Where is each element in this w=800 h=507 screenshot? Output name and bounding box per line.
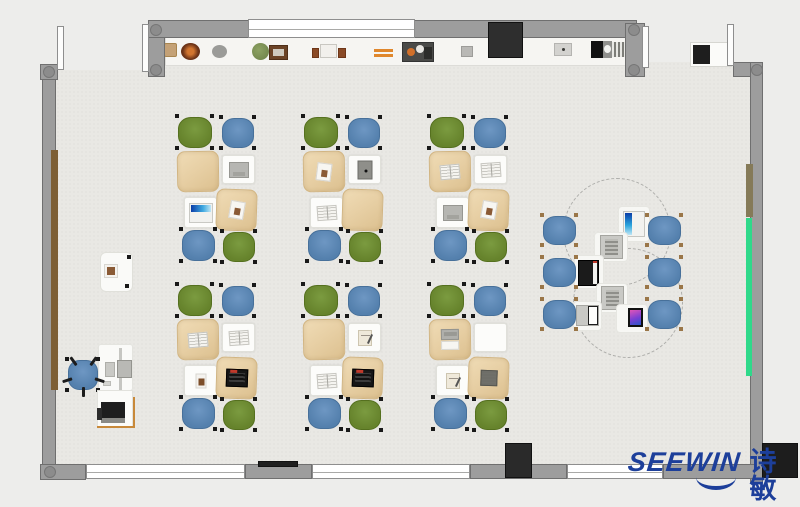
paper-sheet [480, 200, 498, 220]
chair-foot [504, 314, 508, 318]
chair-foot [336, 314, 340, 318]
shelf-item-device [591, 41, 625, 58]
door-leaf-top-left-a [57, 26, 64, 70]
laptop-red-dot [593, 261, 597, 263]
chair-foot [471, 283, 475, 287]
laptop-red-mark [230, 370, 237, 373]
paper-sketch [321, 169, 328, 177]
device-striped-part [612, 42, 625, 57]
student-desk-tr [474, 323, 507, 352]
student-chair-tr [348, 286, 380, 316]
student-chair-tr [348, 118, 380, 148]
wood-panel-left-wall [51, 150, 58, 390]
window-mullion [313, 472, 469, 473]
shelf-item-box-white [320, 44, 337, 58]
tray-white-ball [416, 45, 424, 53]
pod-laptop-black [578, 260, 599, 286]
pod-chair-5 [648, 258, 681, 287]
printer-side [97, 408, 102, 420]
student-desk-br [341, 188, 383, 231]
student-desk-tr [348, 155, 381, 184]
chair-foot [219, 314, 223, 318]
printer-edge-v [133, 397, 135, 428]
shelf-item-plant [252, 43, 269, 60]
dark-bar-bottom-wall [258, 461, 298, 467]
laptop-screen-lines [228, 373, 244, 383]
student-chair-tr [474, 118, 506, 148]
desk-cluster-1 [177, 116, 256, 264]
chair-foot [336, 146, 340, 150]
window-bottom-1 [86, 464, 245, 479]
open-book [228, 329, 249, 345]
chair-foot [504, 283, 508, 287]
desk-monitor [117, 360, 132, 378]
pod-chair-4 [648, 216, 681, 245]
chair-foot [378, 146, 382, 150]
student-chair-bl [434, 398, 467, 429]
student-desk-bl [436, 197, 469, 228]
chair-foot [431, 395, 435, 399]
dark-cabinet-top-wall [488, 22, 523, 58]
cabinet-foot-1 [127, 255, 131, 259]
student-desk-br [341, 356, 383, 399]
pod-phone-colorful [628, 308, 643, 327]
pod-laptop-white [576, 305, 599, 326]
shelf-item-tray [402, 42, 434, 62]
laptop-red-mark [356, 370, 363, 373]
pod-chair-3 [543, 300, 576, 329]
door-leaf-top-right-a [642, 26, 649, 68]
student-desk-br [467, 356, 509, 399]
office-chair-spoke [82, 387, 85, 397]
chair-foot [252, 146, 256, 150]
chair-foot [305, 427, 309, 431]
student-desk-tl [303, 151, 346, 193]
student-desk-tr [348, 323, 381, 352]
white-sheet [441, 340, 459, 349]
desk-cluster-4 [177, 284, 256, 432]
tablet-sketch [605, 239, 618, 255]
brand-wordmark: SEEWIN [627, 449, 742, 476]
chair-foot [213, 259, 217, 263]
chair-foot [220, 428, 224, 432]
chair-foot [179, 259, 183, 263]
laptop-key-area [233, 172, 245, 176]
chair-foot [471, 146, 475, 150]
door-leaf-top-right-b [727, 24, 734, 66]
dark-book [480, 370, 498, 387]
laptop-open-blue [189, 203, 213, 223]
student-desk-tr [222, 323, 255, 352]
chair-foot [431, 427, 435, 431]
student-desk-bl [184, 197, 217, 228]
student-chair-br [349, 400, 381, 430]
chair-foot [210, 146, 214, 150]
chair-foot [345, 146, 349, 150]
tablet-dark [357, 160, 372, 179]
shelf-item-sticks [374, 49, 393, 57]
chair-foot [465, 259, 469, 263]
wall-column-1 [43, 66, 55, 78]
chair-foot [339, 259, 343, 263]
student-chair-tl [178, 117, 212, 148]
laptop-key-area [444, 331, 457, 335]
tray-dark-item [424, 47, 432, 59]
student-chair-br [223, 400, 255, 430]
book-spine [449, 165, 451, 178]
student-chair-tr [222, 118, 254, 148]
notebook-line [449, 378, 458, 379]
student-desk-bl [436, 365, 469, 396]
student-desk-br [467, 188, 509, 231]
chair-foot [252, 314, 256, 318]
chair-foot [465, 427, 469, 431]
chair-foot [305, 227, 309, 231]
laptop-gray [443, 205, 463, 221]
student-desk-tl [429, 151, 472, 193]
chair-foot [219, 146, 223, 150]
printer-edge-h [97, 426, 135, 428]
photo-blob [198, 378, 204, 385]
student-chair-bl [182, 398, 215, 429]
desk-cluster-3 [429, 116, 508, 264]
student-chair-bl [182, 230, 215, 261]
book-spine [197, 333, 199, 346]
chair-foot [472, 428, 476, 432]
student-chair-br [475, 232, 507, 262]
chair-foot [252, 115, 256, 119]
laptop-gray [229, 162, 249, 178]
stick [374, 54, 393, 57]
window-mullion [249, 29, 414, 30]
student-chair-tl [430, 285, 464, 316]
student-desk-bl [310, 197, 343, 228]
student-desk-bl [310, 365, 343, 396]
chair-foot [378, 115, 382, 119]
laptop-gray [441, 328, 459, 339]
student-desk-tl [429, 319, 472, 361]
box-dot-mark [562, 48, 565, 51]
chair-foot [219, 115, 223, 119]
book-spine [326, 206, 328, 219]
teacher-office-chair [68, 360, 98, 390]
book-spine [490, 163, 492, 176]
wall-column-5 [628, 64, 640, 76]
chair-foot [471, 314, 475, 318]
chair-foot [345, 283, 349, 287]
outside-patch-top-left [56, 38, 148, 70]
printer-tray [101, 418, 125, 423]
student-chair-tr [222, 286, 254, 316]
shelf-item-bowl [181, 43, 200, 60]
chair-foot [219, 283, 223, 287]
open-book [187, 331, 208, 348]
wall-column-7 [44, 466, 56, 478]
wood-panel-right-wall [746, 164, 753, 217]
chair-foot [305, 259, 309, 263]
chair-foot [305, 395, 309, 399]
shelf-item-bowl-gray [212, 45, 227, 58]
student-chair-tr [474, 286, 506, 316]
device-mid-part [603, 41, 612, 58]
wall-column-2 [150, 24, 162, 36]
desk-cluster-2 [303, 116, 382, 264]
chair-foot [462, 314, 466, 318]
small-photo [195, 373, 206, 388]
open-book [316, 204, 337, 220]
student-chair-tl [430, 117, 464, 148]
device-black-part [591, 41, 603, 58]
pod-chair-1 [543, 216, 576, 245]
brand-cjk: 诗敏 [750, 449, 800, 503]
student-chair-tl [304, 117, 338, 148]
chair-foot [179, 427, 183, 431]
student-chair-br [223, 232, 255, 262]
wall-column-4 [628, 24, 640, 36]
laptop-screen-blue [191, 205, 211, 212]
chair-foot [504, 146, 508, 150]
brand-logo: SEEWIN 诗敏 [628, 449, 800, 503]
shelf-item-box-tan [164, 43, 177, 57]
cabinet-foot-2 [125, 284, 129, 288]
shelf-item-box-small [461, 46, 473, 57]
tray-orange-ball [407, 48, 415, 56]
chair-foot [471, 115, 475, 119]
book-spine [238, 331, 240, 344]
classroom-floorplan: SEEWIN 诗敏 [0, 0, 800, 507]
notebook [446, 373, 460, 389]
laptop-open-black [351, 369, 374, 388]
chair-foot [431, 259, 435, 263]
student-chair-br [349, 232, 381, 262]
student-chair-bl [308, 230, 341, 261]
stick [374, 49, 393, 52]
notebook [358, 330, 372, 346]
door-leaf-top-left-b [142, 24, 149, 72]
student-desk-br [215, 356, 257, 399]
chair-foot [346, 260, 350, 264]
laptop-white-screen [588, 306, 598, 325]
wall-column-3 [150, 64, 162, 76]
device-dial [604, 45, 611, 53]
printer [101, 402, 125, 423]
window-mullion [87, 472, 244, 473]
wall-column-6 [751, 64, 763, 76]
chair-foot [378, 283, 382, 287]
chair-foot [345, 314, 349, 318]
chair-foot [472, 260, 476, 264]
student-chair-br [475, 400, 507, 430]
student-desk-tr [474, 155, 507, 184]
chair-foot [504, 115, 508, 119]
desk-cluster-6 [429, 284, 508, 432]
student-desk-tl [177, 151, 220, 193]
laptop-screen-lines [354, 373, 370, 383]
student-chair-bl [434, 230, 467, 261]
dark-cabinet-bottom-wall [505, 443, 532, 478]
student-chair-tl [178, 285, 212, 316]
chair-foot [345, 115, 349, 119]
window-top [248, 19, 415, 38]
shelf-item-book [312, 48, 319, 58]
laptop-key-area [447, 215, 459, 219]
chair-foot [179, 227, 183, 231]
chair-foot [431, 227, 435, 231]
paper-sheet [315, 162, 332, 182]
chair-foot [220, 260, 224, 264]
chair-foot [213, 427, 217, 431]
paper-sheet [228, 200, 246, 220]
paper-sketch [233, 208, 240, 216]
laptop-white-strip [593, 262, 597, 284]
student-chair-tl [304, 285, 338, 316]
student-desk-tl [177, 319, 220, 361]
open-book [439, 163, 460, 180]
chair-foot [378, 314, 382, 318]
student-desk-tr [222, 155, 255, 184]
chair-foot [210, 314, 214, 318]
shelf-item-book [338, 48, 346, 58]
chair-foot [179, 395, 183, 399]
student-chair-bl [308, 398, 341, 429]
shelf-item-box-dot [554, 43, 572, 56]
chair-foot [346, 428, 350, 432]
window-bottom-2 [312, 464, 470, 479]
chair-foot [339, 427, 343, 431]
pod-chair-2 [543, 258, 576, 287]
paper-sketch [485, 208, 492, 216]
chair-foot [252, 283, 256, 287]
book-spine [326, 374, 328, 387]
pod-chair-6 [648, 300, 681, 329]
doorway-shelf-item [693, 45, 710, 64]
cabinet-photo-blob [107, 267, 115, 275]
tablet-dot [364, 169, 367, 172]
brand-swoosh-icon [696, 476, 736, 490]
desk-cluster-5 [303, 284, 382, 432]
picture-frame-photo [273, 49, 284, 56]
open-book [316, 372, 337, 388]
notebook-line [361, 335, 370, 336]
desk-keyboard [105, 362, 115, 377]
student-desk-br [215, 188, 257, 231]
student-desk-bl [184, 365, 217, 396]
pod-tablet-gray [600, 235, 623, 259]
green-board-right-wall [746, 218, 752, 376]
open-book [480, 161, 501, 177]
laptop-open-black [225, 369, 248, 388]
shelf-item-picture-frame [269, 45, 288, 60]
student-desk-tl [303, 319, 346, 361]
chair-foot [462, 146, 466, 150]
